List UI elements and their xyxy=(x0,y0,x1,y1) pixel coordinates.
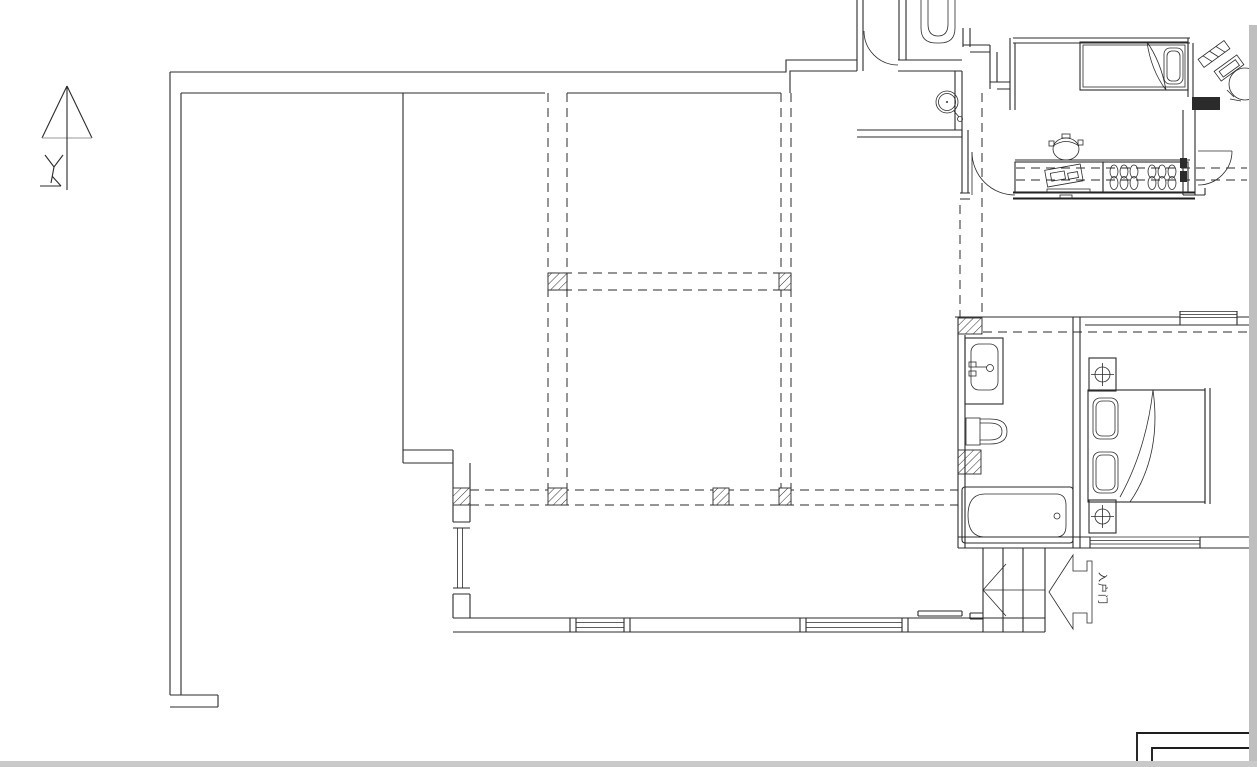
entry-direction-arrow: 入户门 xyxy=(1049,555,1109,629)
staircase xyxy=(970,548,1045,632)
outer-walls xyxy=(170,60,857,707)
toilet xyxy=(966,418,1007,445)
entry-arrow-label: 入户门 xyxy=(1096,572,1109,605)
floor-plan-canvas: 入户门 xyxy=(0,0,1257,767)
counter-appliance xyxy=(1045,164,1090,199)
wc-room xyxy=(857,0,1010,137)
vanity-sink xyxy=(965,338,1003,404)
bathtub xyxy=(962,487,1073,543)
bathroom xyxy=(955,317,1085,548)
desk xyxy=(1198,41,1244,82)
north-arrow-icon xyxy=(40,86,92,190)
nightstand-lamp-bottom xyxy=(1089,500,1116,533)
floor-plan-page: 入户门 xyxy=(0,0,1257,767)
double-bed xyxy=(1088,388,1210,504)
page-edge xyxy=(0,25,1257,767)
rice-cooker xyxy=(1049,134,1083,160)
nightstand-lamp-top xyxy=(1089,358,1116,391)
kitchen-room xyxy=(960,38,1195,199)
entry-door xyxy=(857,0,962,71)
dashed-demolition-walls xyxy=(470,93,1250,505)
dish-rack xyxy=(1110,165,1176,190)
hatched-columns xyxy=(453,273,982,505)
single-bed xyxy=(1080,42,1188,90)
bedroom xyxy=(1085,311,1250,548)
south-wall xyxy=(453,611,1045,632)
interior-wall-left xyxy=(403,93,470,618)
